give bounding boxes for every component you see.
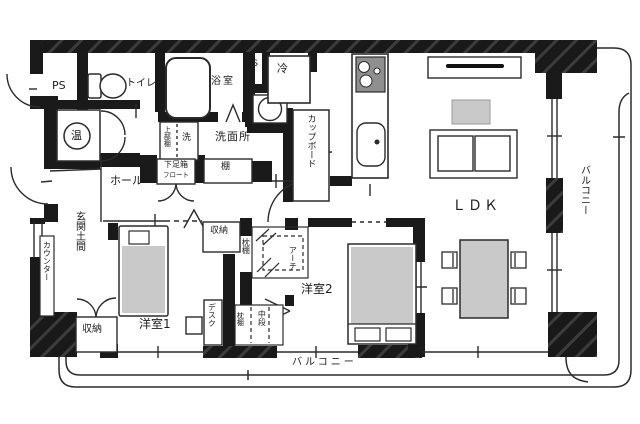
label-counter: カウンター bbox=[42, 241, 50, 281]
label-washer: 洗 bbox=[182, 134, 191, 143]
label-shelf: 棚 bbox=[221, 163, 230, 172]
label-storage-hall: 収納 bbox=[210, 227, 228, 236]
tv-board-icon bbox=[428, 57, 521, 78]
label-ldk: ＬＤＫ bbox=[452, 199, 500, 214]
label-bath: 浴室 bbox=[211, 77, 235, 88]
fridge-box bbox=[268, 56, 310, 103]
label-ps-left: PS bbox=[52, 80, 66, 92]
sofa-icon bbox=[430, 130, 517, 178]
label-toilet: トイレ bbox=[126, 79, 156, 90]
entrance-door-arc bbox=[11, 167, 48, 204]
kitchen-counter bbox=[352, 54, 388, 178]
label-balcony-right: バルコニー bbox=[578, 165, 589, 215]
label-water-heater: 温 bbox=[71, 130, 82, 142]
bath-folding-door bbox=[226, 105, 240, 122]
desk-icon bbox=[186, 300, 222, 345]
label-storage-entrance: 収納 bbox=[82, 325, 102, 336]
label-pillow-shelf-lower: 枕棚 bbox=[236, 312, 243, 326]
label-bedroom2: 洋室2 bbox=[301, 283, 333, 296]
floorplan: PS トイレ 浴室 PS 冷 カップボード 洗面所 上部棚 洗 温 下足箱 フロ… bbox=[0, 0, 640, 424]
low-table-icon bbox=[452, 100, 490, 124]
toilet-icon bbox=[88, 74, 126, 98]
label-arch: アーチ bbox=[288, 246, 296, 270]
desk-chair-icon bbox=[186, 317, 202, 334]
label-middle-shelf: 中段 bbox=[257, 310, 265, 326]
label-ps-kitchen: PS bbox=[247, 60, 258, 69]
label-bedroom1: 洋室1 bbox=[139, 318, 171, 331]
label-shoe-box: 下足箱 bbox=[158, 161, 194, 169]
sink-icon bbox=[357, 123, 385, 166]
bathtub-icon bbox=[166, 58, 210, 118]
dining-table-icon bbox=[460, 240, 508, 318]
label-washroom: 洗面所 bbox=[215, 131, 251, 143]
stove-icon bbox=[356, 57, 385, 92]
bed-double-icon bbox=[348, 244, 416, 344]
label-entrance: 玄関土間 bbox=[73, 211, 84, 251]
heater-door-arc bbox=[101, 111, 125, 135]
label-upper-shelf: 上部棚 bbox=[163, 126, 170, 147]
label-desk: デスク bbox=[207, 303, 215, 327]
shoebox-door-arc bbox=[158, 183, 176, 201]
label-cupboard: カップボード bbox=[305, 114, 314, 168]
label-hall: ホール bbox=[110, 175, 143, 187]
storage-door-arc bbox=[77, 299, 96, 318]
label-fridge: 冷 bbox=[277, 63, 288, 75]
label-balcony-bottom: バルコニー bbox=[292, 358, 357, 369]
label-shoe-box-2: フロート bbox=[158, 172, 194, 179]
label-pillow-shelf-upper: 枕棚 bbox=[241, 238, 249, 254]
bedroom2-upper-closet bbox=[252, 227, 308, 278]
bed-single-icon bbox=[119, 226, 168, 316]
balcony-rail bbox=[59, 48, 631, 387]
closet-folding-door bbox=[184, 210, 204, 228]
